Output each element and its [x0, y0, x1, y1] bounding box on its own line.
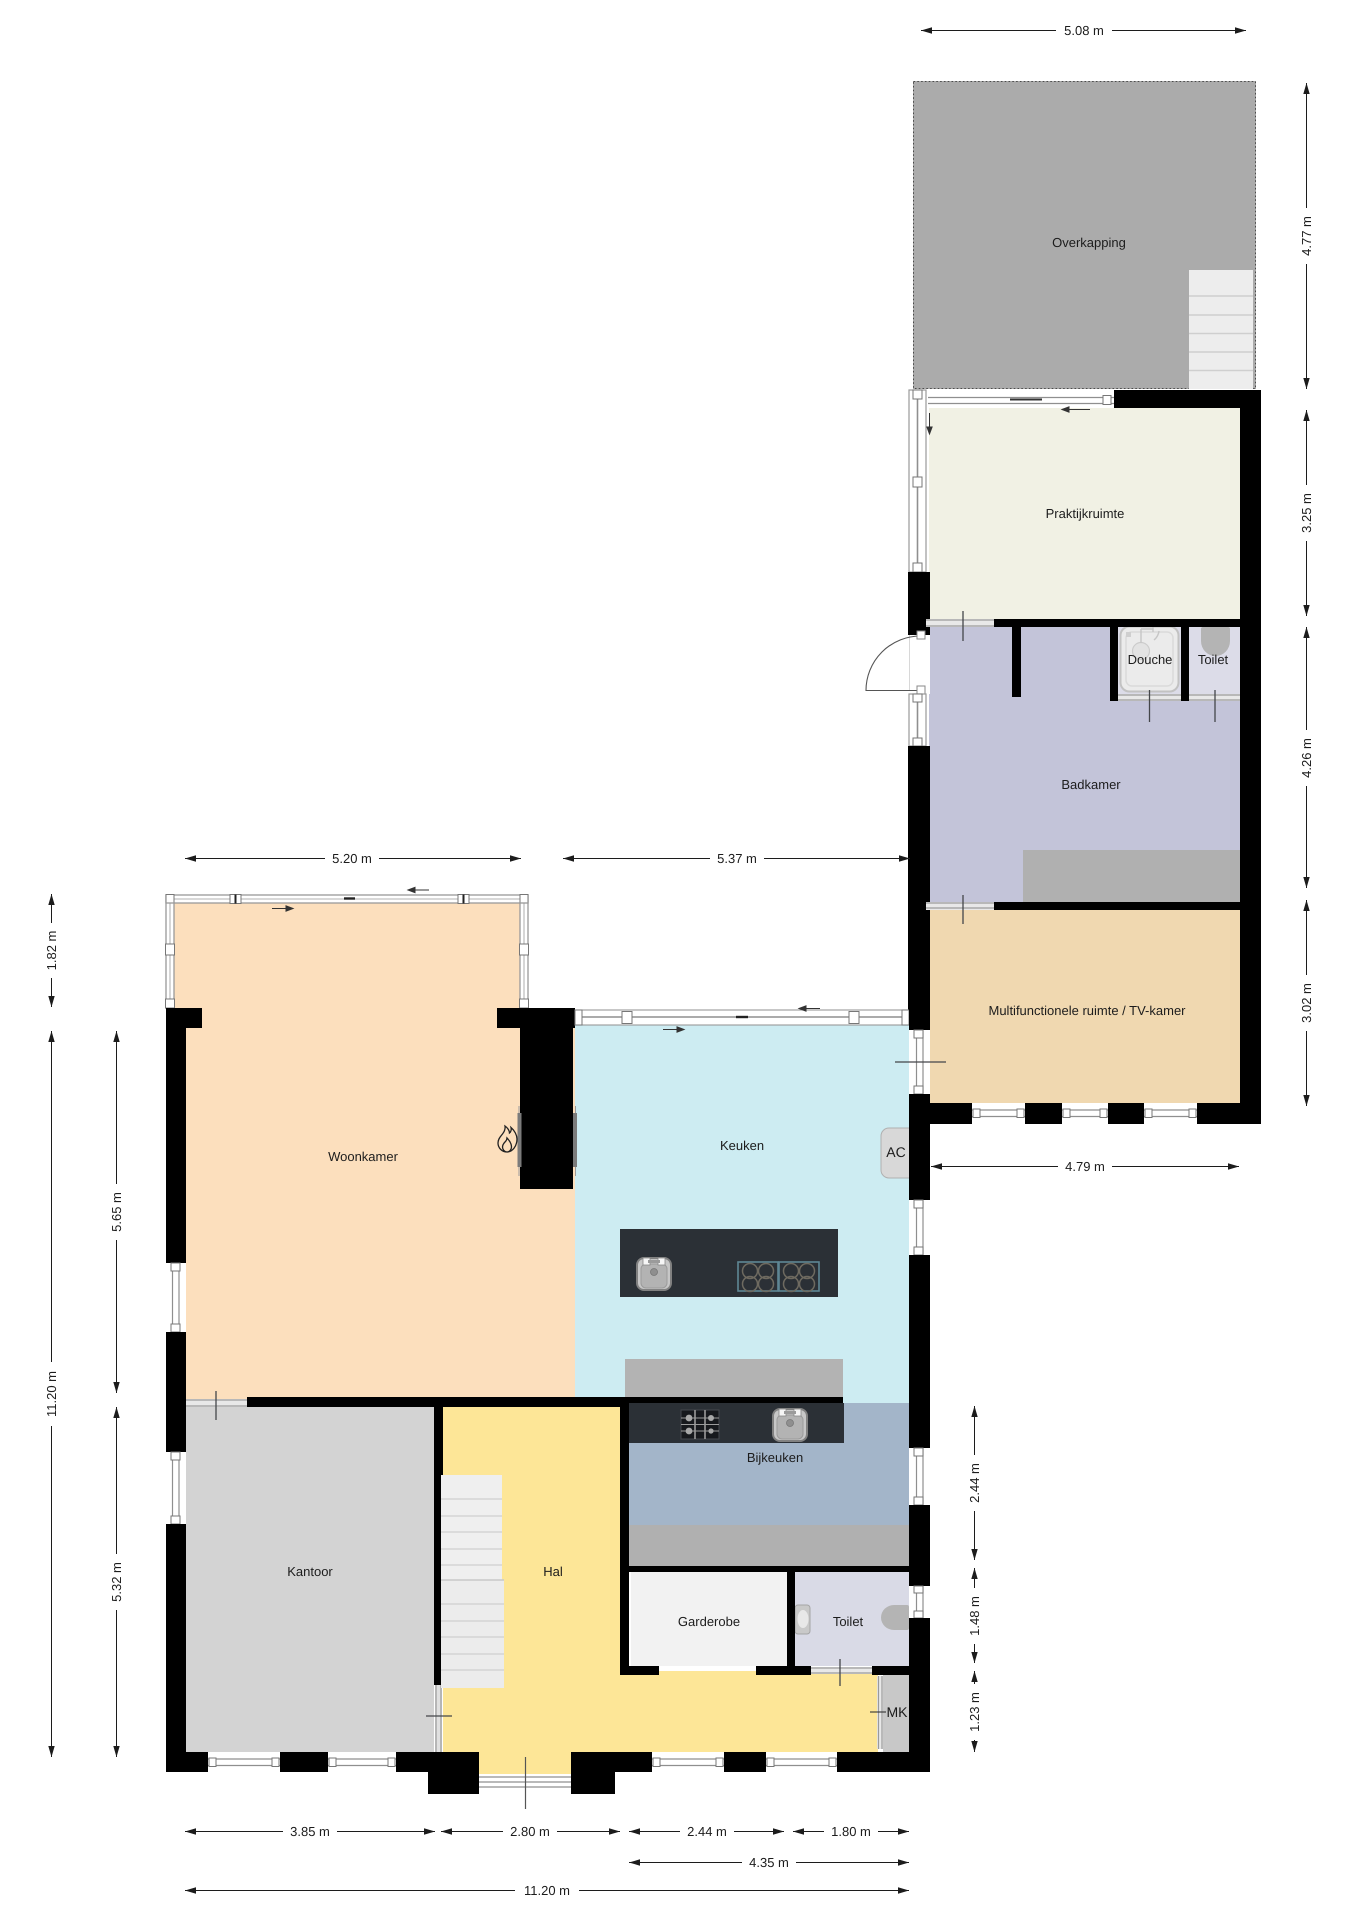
svg-text:Douche: Douche	[1128, 652, 1173, 667]
svg-text:Garderobe: Garderobe	[678, 1614, 740, 1629]
svg-text:Keuken: Keuken	[720, 1138, 764, 1153]
svg-text:4.35 m: 4.35 m	[749, 1855, 789, 1870]
svg-text:11.20 m: 11.20 m	[44, 1371, 59, 1417]
svg-text:3.25 m: 3.25 m	[1299, 493, 1314, 533]
svg-text:AC: AC	[886, 1144, 905, 1160]
svg-text:2.44 m: 2.44 m	[967, 1463, 982, 1503]
svg-text:5.08 m: 5.08 m	[1064, 23, 1104, 38]
svg-text:2.44 m: 2.44 m	[687, 1824, 727, 1839]
svg-text:Praktijkruimte: Praktijkruimte	[1046, 506, 1125, 521]
svg-text:4.79 m: 4.79 m	[1065, 1159, 1105, 1174]
svg-text:Toilet: Toilet	[1198, 652, 1229, 667]
svg-text:1.82 m: 1.82 m	[44, 931, 59, 971]
svg-text:4.26 m: 4.26 m	[1299, 738, 1314, 778]
svg-text:5.37 m: 5.37 m	[717, 851, 757, 866]
svg-text:4.77 m: 4.77 m	[1299, 216, 1314, 256]
svg-text:1.23 m: 1.23 m	[967, 1692, 982, 1732]
svg-text:Woonkamer: Woonkamer	[328, 1149, 399, 1164]
svg-text:Toilet: Toilet	[833, 1614, 864, 1629]
svg-text:5.32 m: 5.32 m	[109, 1562, 124, 1602]
svg-text:Overkapping: Overkapping	[1052, 235, 1126, 250]
svg-text:3.85 m: 3.85 m	[290, 1824, 330, 1839]
svg-text:3.02 m: 3.02 m	[1299, 983, 1314, 1023]
svg-text:5.65 m: 5.65 m	[109, 1192, 124, 1232]
svg-text:Bijkeuken: Bijkeuken	[747, 1450, 803, 1465]
svg-text:MK: MK	[887, 1704, 909, 1720]
svg-text:Hal: Hal	[543, 1564, 563, 1579]
svg-text:1.48 m: 1.48 m	[967, 1596, 982, 1636]
svg-text:1.80 m: 1.80 m	[831, 1824, 871, 1839]
svg-text:11.20 m: 11.20 m	[524, 1883, 570, 1898]
svg-text:5.20 m: 5.20 m	[332, 851, 372, 866]
svg-text:Multifunctionele ruimte / TV-k: Multifunctionele ruimte / TV-kamer	[989, 1003, 1187, 1018]
svg-text:Badkamer: Badkamer	[1061, 777, 1121, 792]
svg-text:Kantoor: Kantoor	[287, 1564, 333, 1579]
svg-text:2.80 m: 2.80 m	[510, 1824, 550, 1839]
